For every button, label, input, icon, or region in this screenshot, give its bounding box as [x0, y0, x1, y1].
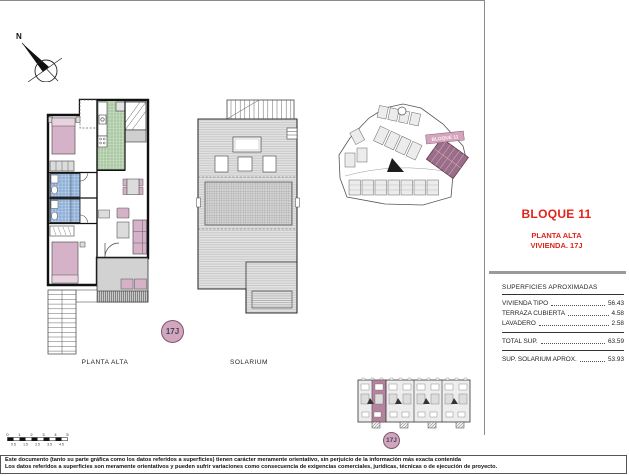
sideboard	[99, 210, 110, 218]
table-divider: TOTAL SUP. 63.59	[502, 332, 624, 345]
total-label: TOTAL SUP.	[502, 338, 538, 345]
disclaimer-box: Este documento (tanto su parte gráfica c…	[0, 455, 627, 474]
toilet-2	[52, 212, 58, 220]
row-value: 4.58	[612, 310, 624, 317]
row-label: TERRAZA CUBIERTA	[502, 310, 565, 317]
dotted-leader	[568, 314, 609, 316]
scale-minor-tick: 0.5	[11, 443, 16, 447]
laundry-mat	[252, 291, 292, 308]
solarium-plan	[195, 95, 315, 375]
kitchen-sink	[99, 115, 106, 124]
dotted-leader	[539, 324, 609, 326]
disclaimer-line-1: Este documento (tanto su parte gráfica c…	[5, 457, 626, 464]
terrace-railing	[97, 291, 148, 302]
exterior-staircase	[48, 290, 97, 354]
key-plan-legs	[372, 422, 464, 428]
dining-table	[127, 179, 139, 195]
key-plan	[352, 372, 472, 434]
toilet-1	[52, 186, 58, 194]
title-block-rule	[489, 271, 626, 274]
solarium-label: SOLARIUM	[199, 359, 299, 366]
scale-major-tick: 3	[42, 432, 45, 437]
scale-minor-tick: 2.5	[35, 443, 40, 447]
row-value: 2.58	[612, 320, 624, 327]
surfaces-table: SUPERFICIES APROXIMADAS VIVIENDA TIPO 56…	[502, 284, 624, 363]
unit-badge-key-plan: 17J	[383, 432, 400, 449]
stove	[98, 136, 107, 147]
compass-north-label: N	[16, 32, 22, 41]
scale-major-tick: 2	[30, 432, 33, 437]
scale-major-tick: 1	[18, 432, 21, 437]
patio-shaft	[80, 100, 97, 128]
compass-rose: N	[8, 24, 66, 82]
frame-top-border	[0, 0, 485, 1]
solarium-sup-value: 53.93	[608, 356, 624, 363]
table-total-row: TOTAL SUP. 63.59	[502, 338, 624, 345]
solarium-stair	[227, 100, 294, 119]
block-subtitle-floor: PLANTA ALTA	[484, 231, 629, 240]
sink-1	[51, 175, 58, 183]
fridge	[116, 102, 125, 111]
pergola	[205, 182, 292, 225]
floor-plan-label: PLANTA ALTA	[55, 359, 155, 366]
communal-stairwell	[125, 102, 146, 142]
table-row: VIVIENDA TIPO 56.43	[502, 300, 624, 307]
site-plan: BLOQUE 11	[325, 98, 475, 223]
scale-major-tick: 0	[6, 432, 9, 437]
block-title: BLOQUE 11	[484, 207, 629, 221]
scale-bar: 0 1 2 3 4 5 0.5 1.5 2.5 3.5 4.5	[5, 431, 85, 448]
sofa	[133, 220, 147, 254]
dotted-leader	[541, 342, 605, 344]
coffee-table	[117, 222, 129, 238]
sink-2	[51, 201, 58, 209]
total-value: 63.59	[608, 338, 624, 345]
block-subtitle-unit: VIVIENDA. 17J	[484, 241, 629, 250]
scale-minor-tick: 4.5	[59, 443, 64, 447]
terrace	[97, 258, 148, 302]
dotted-leader	[551, 304, 605, 306]
table-solarium-row: SUP. SOLARIUM APROX. 53.93	[502, 356, 624, 363]
surfaces-header: SUPERFICIES APROXIMADAS	[502, 284, 624, 295]
planter	[121, 279, 133, 289]
row-label: VIVIENDA TIPO	[502, 300, 548, 307]
ac-unit	[287, 128, 297, 139]
dotted-leader	[580, 360, 605, 362]
table-divider: SUP. SOLARIUM APROX. 53.93	[502, 350, 624, 363]
row-label: LAVADERO	[502, 320, 536, 327]
scale-major-tick: 5	[66, 432, 69, 437]
row-value: 56.43	[608, 300, 624, 307]
table-row: TERRAZA CUBIERTA 4.58	[502, 310, 624, 317]
scale-minor-tick: 3.5	[47, 443, 52, 447]
solarium-sup-label: SUP. SOLARIUM APROX.	[502, 356, 577, 363]
disclaimer-line-2: Los datos referidos a superficies son me…	[5, 464, 626, 471]
unit-badge-floor-plan: 17J	[161, 320, 184, 343]
kitchen	[97, 101, 125, 171]
armchair	[117, 208, 129, 218]
scale-minor-tick: 1.5	[23, 443, 28, 447]
planter	[135, 279, 147, 289]
plan-sheet: N	[0, 0, 629, 476]
scale-major-tick: 4	[54, 432, 57, 437]
table-row: LAVADERO 2.58	[502, 320, 624, 327]
wardrobe-2	[50, 226, 74, 236]
